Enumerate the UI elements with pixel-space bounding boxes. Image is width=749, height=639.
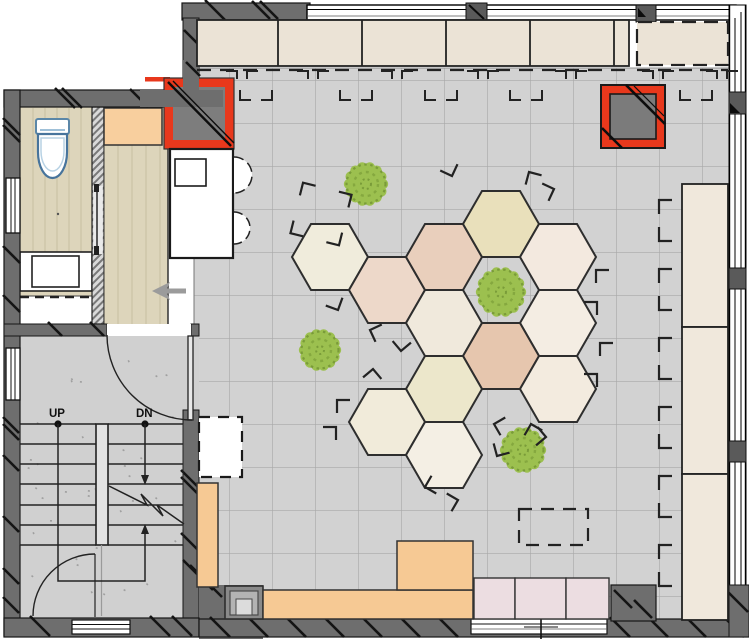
svg-text:DN: DN <box>136 408 153 420</box>
svg-text:UP: UP <box>49 408 65 420</box>
